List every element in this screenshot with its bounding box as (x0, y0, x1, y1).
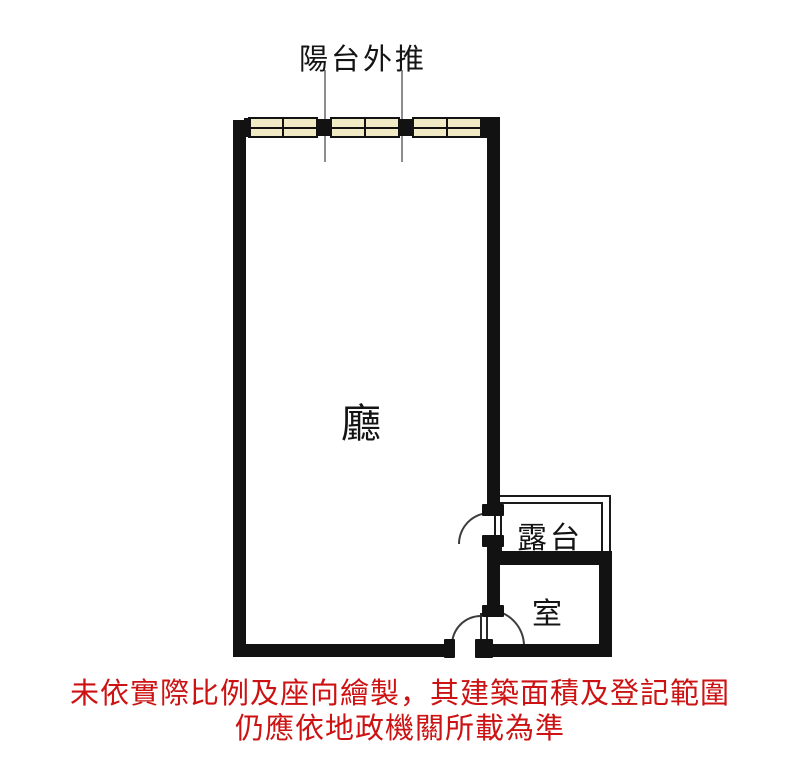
window-pane-divider-h (250, 127, 316, 129)
bedroom-door-jamb-top (482, 605, 504, 617)
wall-bottom-right (484, 644, 612, 657)
window-end-cap-left (244, 118, 251, 137)
window-segment-3 (412, 117, 482, 138)
disclaimer-line-2: 仍應依地政機關所載為準 (0, 711, 800, 746)
terrace-door-jamb-top (482, 504, 504, 516)
leader-line-right (401, 70, 403, 162)
window-separator-2 (398, 119, 413, 136)
floorplan-canvas: 陽台外推 廳 露台 室 未依實際比例及座向繪製，其建築 (0, 0, 800, 782)
window-pane-divider-h (414, 127, 480, 129)
living-room-label: 廳 (341, 391, 381, 449)
balcony-extension-label: 陽台外推 (299, 36, 427, 78)
disclaimer-line-1: 未依實際比例及座向繪製，其建築面積及登記範圍 (0, 676, 800, 711)
wall-right-upper (487, 120, 500, 506)
bedroom-label: 室 (532, 589, 562, 633)
terrace-label: 露台 (517, 513, 583, 557)
wall-left (233, 120, 246, 657)
entry-door-jamb-left (444, 639, 455, 658)
leader-line-left (324, 70, 326, 162)
wall-room-left (487, 551, 500, 609)
window-segment-2 (330, 117, 400, 138)
disclaimer-text: 未依實際比例及座向繪製，其建築面積及登記範圍 仍應依地政機關所載為準 (0, 676, 800, 746)
wall-room-right (599, 551, 612, 657)
terrace-door-jamb-bottom (482, 535, 504, 547)
wall-bottom-left (233, 644, 446, 657)
window-segment-1 (248, 117, 318, 138)
window-pane-divider-h (332, 127, 398, 129)
window-separator-1 (316, 119, 331, 136)
entry-door-jamb-center (475, 639, 493, 658)
